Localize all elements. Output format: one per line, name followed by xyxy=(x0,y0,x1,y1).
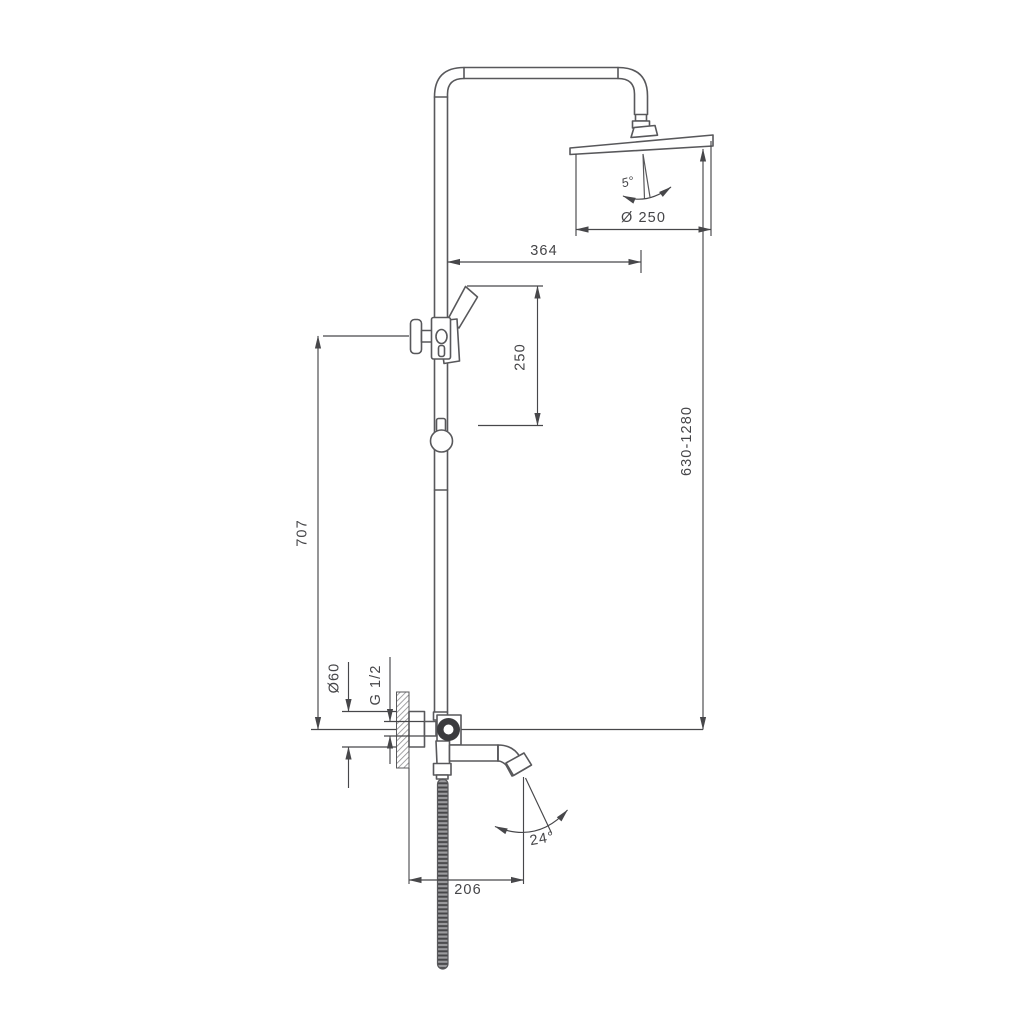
valve-knob-center xyxy=(444,725,454,735)
dimension-hand-shower-travel: 250 xyxy=(467,286,543,426)
clamp-wheel xyxy=(431,430,453,452)
wall-hatch xyxy=(397,692,410,768)
riser-column xyxy=(435,68,648,713)
overall-height-label: 630-1280 xyxy=(679,406,695,476)
dimension-arm-reach: 364 xyxy=(448,243,642,273)
arm-reach-label: 364 xyxy=(530,243,558,259)
pipe-joint-ticks xyxy=(435,68,619,491)
holder-shaft xyxy=(422,331,433,343)
dimension-riser-height: 707 xyxy=(295,336,410,730)
mixer-valve xyxy=(409,712,532,780)
wall-section xyxy=(397,692,410,884)
hose-collar xyxy=(437,775,449,779)
head-connector xyxy=(631,126,658,138)
riser-height-label: 707 xyxy=(295,519,311,547)
valve-lower-body xyxy=(436,741,450,764)
escutcheon-flange xyxy=(409,712,425,748)
hand-shower-assembly xyxy=(411,287,478,364)
thread-connector xyxy=(425,722,437,737)
spout-tube xyxy=(450,745,499,761)
dimension-escutcheon-diameter: Ø60 xyxy=(327,662,397,788)
head-angle-label: 5° xyxy=(620,174,636,191)
dimension-head-angle: 5° xyxy=(620,154,671,199)
dimension-overall-height: 630-1280 xyxy=(679,149,703,730)
escutcheon-diameter-label: Ø60 xyxy=(327,663,343,694)
dimension-spout-projection: 206 xyxy=(409,880,524,898)
connection-size-label: G 1/2 xyxy=(368,665,384,706)
technical-drawing: Ø 250 5° 364 250 707 630-1280 Ø60 G 1/2 xyxy=(0,0,1024,1024)
overhead-shower xyxy=(570,115,713,155)
head-diameter-label: Ø 250 xyxy=(621,210,666,226)
dimension-spout-angle: 24° xyxy=(495,777,568,884)
shower-system-diagram: Ø 250 5° 364 250 707 630-1280 Ø60 G 1/2 xyxy=(0,0,1024,1024)
holder-knob-disc xyxy=(411,320,422,354)
hand-shower-travel-label: 250 xyxy=(513,343,529,371)
arm-nut xyxy=(636,115,647,122)
spout-projection-label: 206 xyxy=(454,882,482,898)
shower-head-plate xyxy=(570,135,713,155)
hose-nut xyxy=(434,764,452,776)
spout-angle-label: 24° xyxy=(528,829,556,849)
shower-hose xyxy=(438,779,449,969)
